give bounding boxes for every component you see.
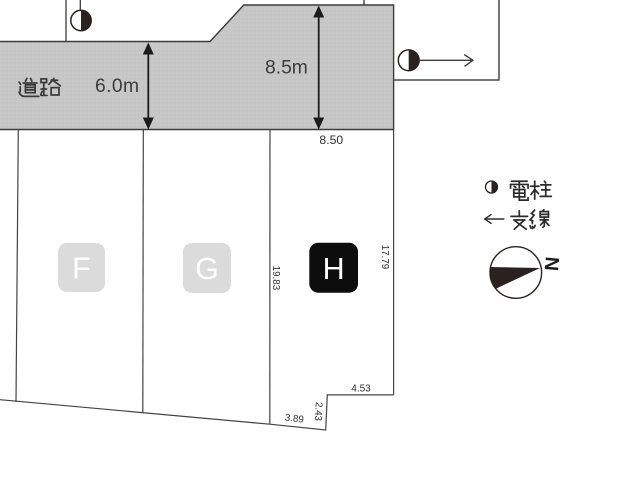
svg-text:N: N bbox=[540, 256, 563, 272]
svg-text:G: G bbox=[195, 252, 219, 286]
svg-text:F: F bbox=[72, 252, 91, 286]
svg-text:3.89: 3.89 bbox=[284, 412, 304, 425]
svg-text:8.5m: 8.5m bbox=[265, 58, 308, 79]
svg-text:17.79: 17.79 bbox=[379, 245, 390, 270]
svg-text:19.83: 19.83 bbox=[270, 266, 281, 291]
svg-text:H: H bbox=[323, 252, 345, 286]
svg-text:6.0m: 6.0m bbox=[95, 76, 139, 97]
svg-text:8.50: 8.50 bbox=[319, 133, 343, 147]
svg-text:2.43: 2.43 bbox=[312, 402, 324, 422]
svg-text:4.53: 4.53 bbox=[351, 383, 371, 394]
